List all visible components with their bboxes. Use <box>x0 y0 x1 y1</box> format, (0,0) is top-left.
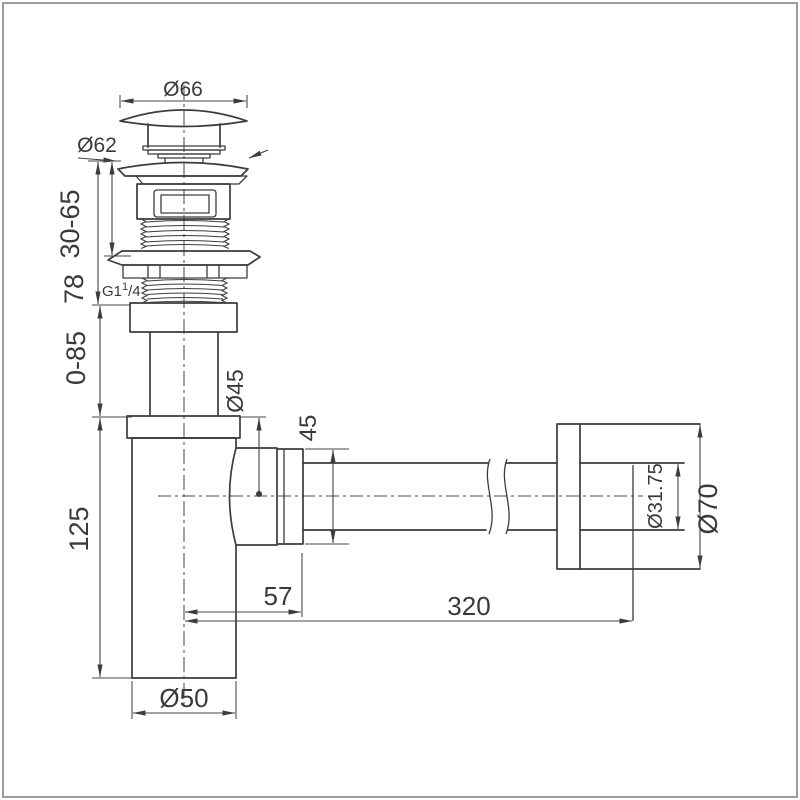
dim-mounting-range: 30-65 <box>55 161 131 259</box>
dim-flange-diameter: Ø62 <box>77 134 268 161</box>
dim-pipe-end-diameter: Ø31.75 <box>645 463 678 529</box>
waste-height-label: 78 <box>59 274 89 304</box>
bottle-trap <box>127 416 303 678</box>
dim-trap-diameter: Ø50 <box>132 681 236 719</box>
overflow-window-inner <box>161 195 209 213</box>
wall-flange-diameter-label: Ø70 <box>693 483 723 534</box>
inlet-diameter-label: Ø45 <box>222 369 248 412</box>
thread-size-callout: G11/4 <box>102 281 141 300</box>
dim-tailpiece-adjust: 0-85 <box>61 306 132 417</box>
leader-dot <box>256 491 262 497</box>
mounting-range-label: 30-65 <box>55 189 85 258</box>
trap-height-label: 125 <box>64 506 94 551</box>
technical-drawing-page: Ø66 Ø62 30-65 78 G11/4 0-85 <box>0 0 800 800</box>
top-flange <box>118 163 248 177</box>
dim-trap-height: 125 <box>64 418 132 678</box>
pipe-length-label: 320 <box>447 591 490 621</box>
dim-pipe-length: 320 <box>185 591 632 621</box>
wall-outlet-pipe <box>303 424 700 621</box>
cap-diameter-label: Ø66 <box>163 78 203 101</box>
outlet-nut-height-label: 45 <box>295 415 322 442</box>
notched-ring <box>123 265 247 278</box>
dim-centre-to-pipe: 57 <box>185 553 302 617</box>
upper-thread <box>141 219 229 249</box>
flange-diameter-label: Ø62 <box>77 134 117 157</box>
thread-size-label: G11/4 <box>102 281 141 300</box>
pipe-end-diameter-label: Ø31.75 <box>645 463 667 529</box>
tailpiece-adjust-label: 0-85 <box>61 331 91 385</box>
trap-diameter-label: Ø50 <box>159 683 208 713</box>
centre-to-pipe-label: 57 <box>264 581 293 611</box>
flange-underplate <box>136 176 247 184</box>
dim-inlet-diameter: Ø45 <box>222 369 266 497</box>
drain-trap-drawing: Ø66 Ø62 30-65 78 G11/4 0-85 <box>0 0 800 800</box>
dim-cap-diameter: Ø66 <box>120 78 247 108</box>
dim-wall-flange-diameter: Ø70 <box>693 425 723 568</box>
